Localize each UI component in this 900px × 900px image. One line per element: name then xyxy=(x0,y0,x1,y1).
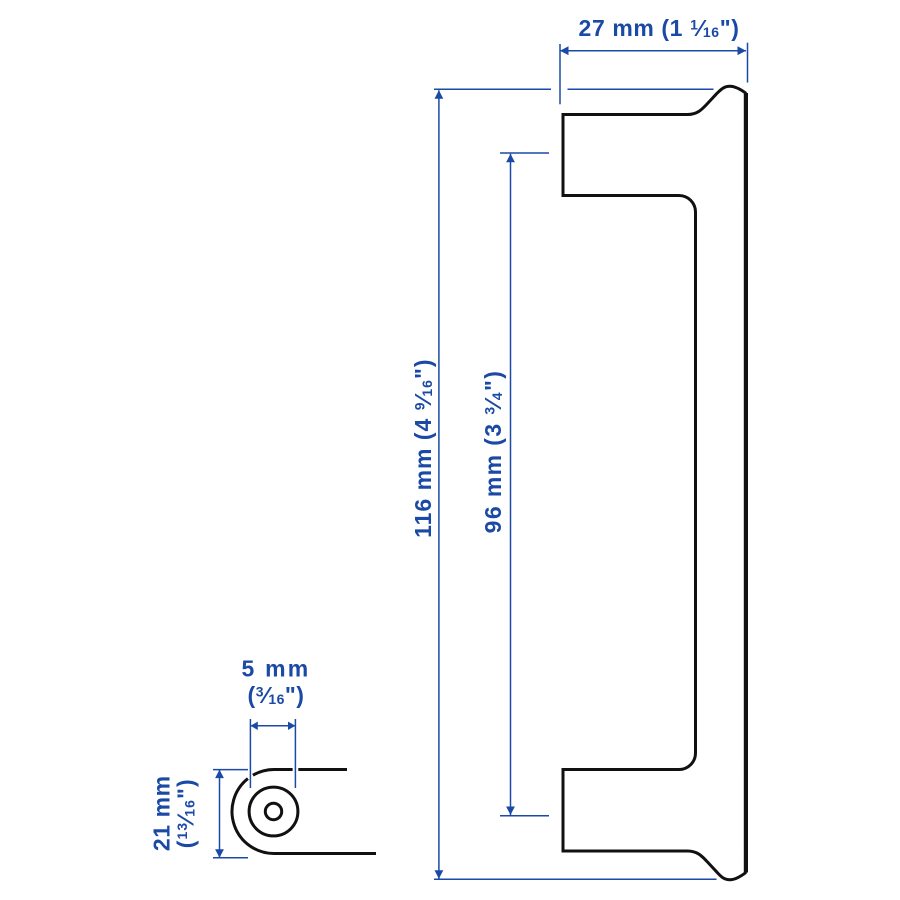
svg-text:(3⁄16"): (3⁄16") xyxy=(248,682,305,708)
svg-text:116 mm (4 9⁄16"): 116 mm (4 9⁄16") xyxy=(410,358,436,537)
svg-text:5 mm: 5 mm xyxy=(242,656,311,682)
svg-text:21 mm: 21 mm xyxy=(149,775,175,851)
svg-text:(13⁄16"): (13⁄16") xyxy=(173,778,199,848)
svg-text:27 mm (1 1⁄16"): 27 mm (1 1⁄16") xyxy=(579,15,740,41)
svg-text:96 mm (3 3⁄4"): 96 mm (3 3⁄4") xyxy=(480,370,506,534)
